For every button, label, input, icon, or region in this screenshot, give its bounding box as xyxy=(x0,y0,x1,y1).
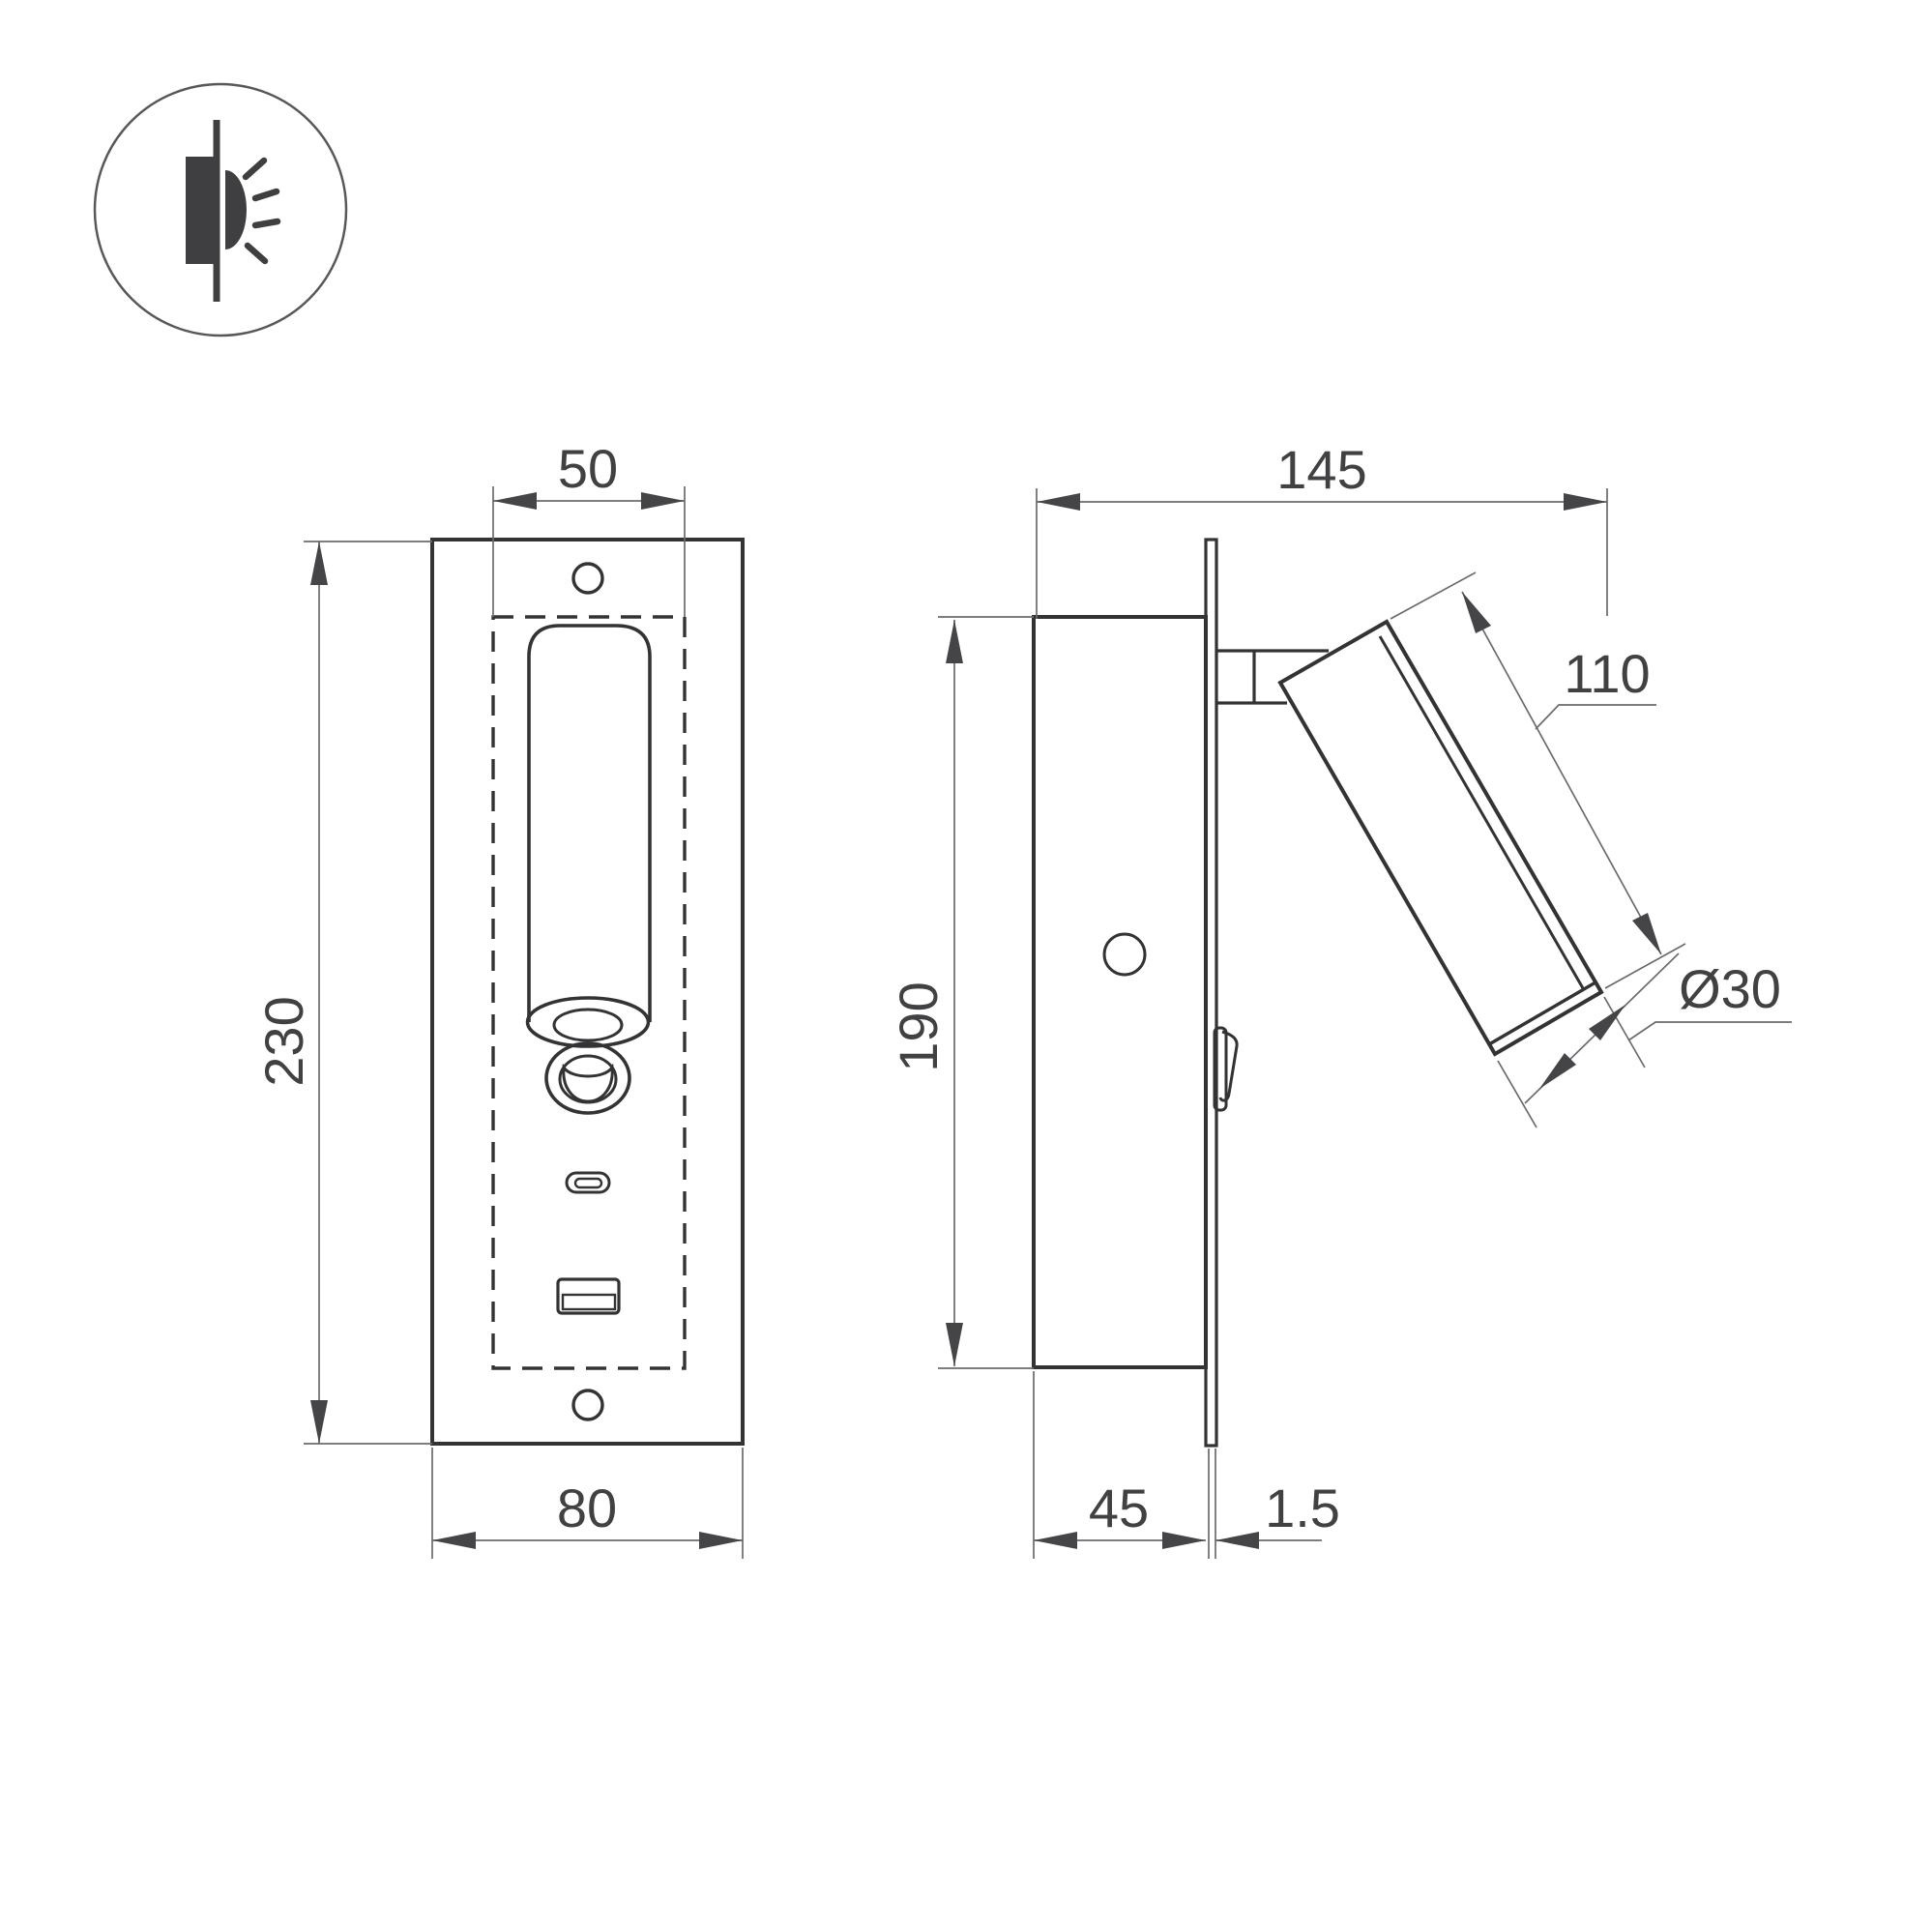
side-lamp-head-edge-line xyxy=(1380,636,1583,988)
icon-circle xyxy=(95,84,346,336)
icon-housing-rect xyxy=(186,157,214,264)
front-screw-hole-bottom xyxy=(573,1390,602,1420)
usb-c-port-pin xyxy=(575,1179,601,1187)
dim-label-45: 45 xyxy=(1089,1478,1149,1538)
dimension-front-height: 230 xyxy=(253,542,432,1444)
dimension-front-width-top: 50 xyxy=(493,438,685,617)
side-touch-button xyxy=(1104,934,1145,975)
usb-a-port xyxy=(558,1279,619,1313)
dimension-front-width-bottom: 80 xyxy=(432,1448,743,1559)
side-lamp-head-endcap-line xyxy=(1489,982,1595,1044)
dimension-head-length: 110 xyxy=(1390,572,1685,988)
dimension-side-height: 190 xyxy=(888,617,1034,1368)
front-lamp-lens xyxy=(554,1010,622,1040)
side-lamp-head xyxy=(1280,622,1601,1054)
drawing-canvas: 50 230 80 xyxy=(0,0,1932,1932)
dimension-side-depth-total: 145 xyxy=(1037,439,1607,619)
side-pivot-arm xyxy=(1216,651,1329,703)
dim-label-1-5: 1.5 xyxy=(1265,1478,1340,1538)
usb-c-port xyxy=(567,1173,609,1192)
dim-label-110: 110 xyxy=(1564,643,1650,704)
front-pivot-ring-inner xyxy=(560,1056,616,1102)
recessed-wall-light-icon xyxy=(95,84,346,336)
side-housing-box xyxy=(1034,617,1206,1367)
dimension-plate-thickness: 1.5 xyxy=(1215,1478,1340,1549)
side-view xyxy=(1034,540,1601,1446)
dim-label-d30: Ø30 xyxy=(1679,958,1781,1019)
front-screw-hole-top xyxy=(573,564,602,593)
front-lamp-cylinder xyxy=(529,626,650,1022)
front-recess-dashed-outline xyxy=(493,617,685,1368)
usb-a-port-tongue xyxy=(563,1295,615,1309)
front-faceplate-outline xyxy=(432,540,743,1444)
dimension-box-depth: 45 xyxy=(1034,1371,1215,1559)
front-view xyxy=(432,540,743,1444)
dimension-head-diameter: Ø30 xyxy=(1498,953,1792,1127)
dim-label-145: 145 xyxy=(1276,439,1366,500)
dim-label-190: 190 xyxy=(888,981,949,1071)
dim-label-230: 230 xyxy=(253,996,314,1086)
technical-drawing-page: 50 230 80 xyxy=(0,0,1932,1932)
dim-label-80: 80 xyxy=(557,1478,617,1538)
dim-label-50: 50 xyxy=(558,438,618,499)
